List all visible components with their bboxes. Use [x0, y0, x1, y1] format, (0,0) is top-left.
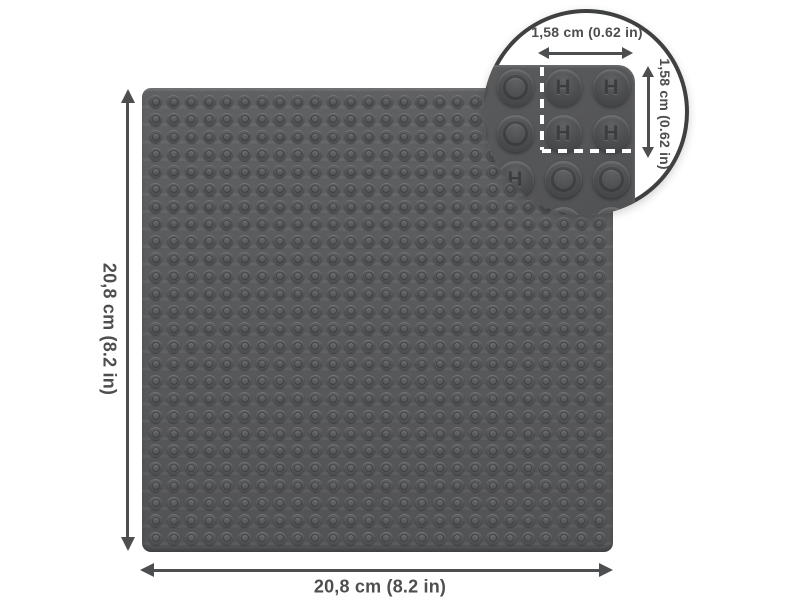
- stud: [167, 410, 180, 423]
- stud: [327, 427, 340, 440]
- stud: [149, 497, 162, 510]
- stud: [433, 322, 446, 335]
- stud: [167, 165, 180, 178]
- stud: [203, 410, 216, 423]
- stud: [362, 322, 375, 335]
- stud: [362, 200, 375, 213]
- stud: [380, 165, 393, 178]
- stud: [220, 165, 233, 178]
- stud: [380, 514, 393, 527]
- brand-logo-letter: H: [603, 215, 618, 216]
- stud: [291, 95, 304, 108]
- stud: [575, 375, 588, 388]
- stud: [220, 462, 233, 475]
- stud: [167, 252, 180, 265]
- stud: [309, 113, 322, 126]
- stud: [149, 375, 162, 388]
- stud: [380, 340, 393, 353]
- stud: [362, 287, 375, 300]
- brand-logo-letter: H: [555, 123, 570, 144]
- stud: [185, 165, 198, 178]
- magnified-stud: [497, 115, 534, 152]
- stud: [469, 200, 482, 213]
- stud: [291, 287, 304, 300]
- stud: [256, 497, 269, 510]
- stud: [344, 375, 357, 388]
- stud: [220, 532, 233, 545]
- stud: [415, 479, 428, 492]
- stud: [149, 305, 162, 318]
- stud: [380, 148, 393, 161]
- stud: [291, 514, 304, 527]
- stud: [415, 235, 428, 248]
- stud: [344, 305, 357, 318]
- stud: [149, 444, 162, 457]
- stud: [291, 183, 304, 196]
- stud: [522, 444, 535, 457]
- stud: [291, 410, 304, 423]
- stud: [469, 148, 482, 161]
- stud: [203, 497, 216, 510]
- stud: [344, 95, 357, 108]
- stud: [469, 410, 482, 423]
- stud: [203, 270, 216, 283]
- stud: [256, 427, 269, 440]
- stud: [433, 252, 446, 265]
- stud: [486, 444, 499, 457]
- stud: [309, 252, 322, 265]
- arrowhead-up-icon: [642, 66, 654, 77]
- stud: [238, 200, 251, 213]
- stud: [203, 217, 216, 230]
- stud: [203, 235, 216, 248]
- stud: [451, 235, 464, 248]
- stud: [327, 200, 340, 213]
- stud: [593, 270, 606, 283]
- stud: [469, 357, 482, 370]
- stud: [273, 514, 286, 527]
- magnified-logo-stud: H: [593, 207, 630, 216]
- arrowhead-up-icon: [121, 89, 135, 103]
- stud: [362, 183, 375, 196]
- stud: [486, 322, 499, 335]
- stud: [291, 200, 304, 213]
- magnified-logo-stud: H: [545, 207, 582, 216]
- stud: [344, 357, 357, 370]
- stud: [256, 130, 269, 143]
- stud: [504, 375, 517, 388]
- stud: [220, 252, 233, 265]
- stud: [344, 148, 357, 161]
- stud: [433, 497, 446, 510]
- magnified-logo-stud: H: [593, 115, 630, 152]
- stud: [398, 340, 411, 353]
- stud: [238, 95, 251, 108]
- stud: [185, 305, 198, 318]
- stud: [433, 148, 446, 161]
- stud: [327, 497, 340, 510]
- stud: [362, 532, 375, 545]
- stud: [486, 497, 499, 510]
- stud: [185, 183, 198, 196]
- stud: [522, 375, 535, 388]
- stud: [557, 217, 570, 230]
- stud: [522, 305, 535, 318]
- stud: [344, 183, 357, 196]
- stud: [149, 165, 162, 178]
- stud: [486, 287, 499, 300]
- stud: [398, 113, 411, 126]
- stud: [593, 375, 606, 388]
- stud: [575, 462, 588, 475]
- stud: [398, 514, 411, 527]
- stud: [309, 130, 322, 143]
- stud: [256, 148, 269, 161]
- stud: [256, 357, 269, 370]
- stud: [149, 514, 162, 527]
- stud: [309, 183, 322, 196]
- stud: [238, 130, 251, 143]
- stud: [380, 235, 393, 248]
- stud: [203, 252, 216, 265]
- stud: [309, 392, 322, 405]
- stud: [238, 392, 251, 405]
- stud: [380, 375, 393, 388]
- stud: [167, 287, 180, 300]
- stud: [398, 270, 411, 283]
- stud: [309, 497, 322, 510]
- stud: [203, 287, 216, 300]
- stud: [220, 375, 233, 388]
- stud: [486, 252, 499, 265]
- stud: [149, 410, 162, 423]
- stud: [593, 287, 606, 300]
- stud: [344, 497, 357, 510]
- stud: [327, 410, 340, 423]
- stud: [593, 235, 606, 248]
- stud: [256, 462, 269, 475]
- stud: [220, 270, 233, 283]
- stud: [220, 235, 233, 248]
- stud: [203, 532, 216, 545]
- stud: [256, 183, 269, 196]
- stud: [451, 113, 464, 126]
- stud: [273, 322, 286, 335]
- stud: [238, 444, 251, 457]
- stud: [433, 392, 446, 405]
- stud: [291, 375, 304, 388]
- stud: [415, 514, 428, 527]
- stud: [273, 252, 286, 265]
- stud: [398, 252, 411, 265]
- stud: [344, 340, 357, 353]
- stud: [469, 217, 482, 230]
- stud: [504, 479, 517, 492]
- stud: [309, 217, 322, 230]
- stud: [433, 375, 446, 388]
- stud: [149, 532, 162, 545]
- stud: [593, 410, 606, 423]
- stud: [469, 427, 482, 440]
- stud: [539, 357, 552, 370]
- stud: [273, 270, 286, 283]
- stud: [433, 113, 446, 126]
- stud: [203, 514, 216, 527]
- stud: [203, 305, 216, 318]
- stud: [256, 200, 269, 213]
- stud: [203, 165, 216, 178]
- stud: [291, 444, 304, 457]
- brand-logo-letter: H: [507, 169, 522, 190]
- stud: [344, 252, 357, 265]
- stud-pitch-width-line: [548, 52, 623, 55]
- magnified-stud: [483, 69, 486, 106]
- stud: [575, 357, 588, 370]
- stud: [327, 340, 340, 353]
- stud: [185, 200, 198, 213]
- stud-pitch-height-label: 1,58 cm (0.62 in): [657, 58, 673, 170]
- stud: [220, 287, 233, 300]
- stud: [504, 462, 517, 475]
- stud: [415, 392, 428, 405]
- stud: [273, 113, 286, 126]
- stud: [185, 375, 198, 388]
- stud: [327, 357, 340, 370]
- arrowhead-down-icon: [642, 147, 654, 158]
- stud: [451, 270, 464, 283]
- stud: [220, 410, 233, 423]
- stud: [433, 235, 446, 248]
- stud: [522, 514, 535, 527]
- inset-magnifier: HHHHHHHH 1,58 cm (0.62 in) 1,58 cm (0.62…: [483, 9, 689, 215]
- stud: [539, 270, 552, 283]
- stud: [451, 514, 464, 527]
- stud: [256, 340, 269, 353]
- stud: [203, 200, 216, 213]
- stud: [486, 217, 499, 230]
- stud: [593, 217, 606, 230]
- stud: [344, 532, 357, 545]
- stud: [220, 444, 233, 457]
- stud: [380, 183, 393, 196]
- stud: [469, 479, 482, 492]
- stud: [149, 340, 162, 353]
- stud: [273, 148, 286, 161]
- stud: [344, 165, 357, 178]
- stud: [593, 252, 606, 265]
- stud: [273, 340, 286, 353]
- stud: [469, 270, 482, 283]
- stud: [185, 427, 198, 440]
- stud: [344, 130, 357, 143]
- stud: [291, 340, 304, 353]
- stud: [149, 95, 162, 108]
- stud: [575, 514, 588, 527]
- stud: [433, 479, 446, 492]
- stud: [398, 497, 411, 510]
- stud: [185, 514, 198, 527]
- stud: [273, 427, 286, 440]
- stud: [167, 183, 180, 196]
- stud: [309, 427, 322, 440]
- stud: [557, 427, 570, 440]
- stud: [593, 514, 606, 527]
- stud: [451, 148, 464, 161]
- stud: [291, 148, 304, 161]
- stud: [398, 462, 411, 475]
- stud: [149, 462, 162, 475]
- stud: [433, 183, 446, 196]
- stud: [167, 532, 180, 545]
- stud: [469, 462, 482, 475]
- stud: [380, 392, 393, 405]
- stud: [291, 462, 304, 475]
- stud: [575, 479, 588, 492]
- height-dimension-line: [126, 100, 129, 540]
- stud: [238, 357, 251, 370]
- stud: [415, 357, 428, 370]
- stud: [167, 235, 180, 248]
- stud: [291, 392, 304, 405]
- stud: [557, 322, 570, 335]
- stud: [539, 392, 552, 405]
- stud: [557, 357, 570, 370]
- stud: [291, 479, 304, 492]
- stud: [327, 113, 340, 126]
- stud: [362, 235, 375, 248]
- stud: [344, 287, 357, 300]
- stud: [539, 410, 552, 423]
- stud: [256, 532, 269, 545]
- stud: [149, 148, 162, 161]
- stud: [380, 497, 393, 510]
- stud: [539, 462, 552, 475]
- stud: [380, 410, 393, 423]
- stud: [362, 305, 375, 318]
- stud: [344, 444, 357, 457]
- stud: [220, 392, 233, 405]
- stud: [380, 305, 393, 318]
- stud: [185, 462, 198, 475]
- stud: [273, 357, 286, 370]
- stud: [469, 95, 482, 108]
- stud: [380, 270, 393, 283]
- arrowhead-down-icon: [121, 537, 135, 551]
- stud: [273, 479, 286, 492]
- stud: [539, 497, 552, 510]
- stud: [220, 113, 233, 126]
- stud: [557, 479, 570, 492]
- stud: [309, 270, 322, 283]
- stud: [344, 427, 357, 440]
- stud: [451, 427, 464, 440]
- stud: [593, 479, 606, 492]
- stud: [185, 270, 198, 283]
- stud: [362, 95, 375, 108]
- stud: [415, 532, 428, 545]
- stud: [433, 532, 446, 545]
- stud: [149, 270, 162, 283]
- stud: [593, 427, 606, 440]
- stud: [327, 375, 340, 388]
- stud: [557, 410, 570, 423]
- stud: [309, 375, 322, 388]
- stud: [398, 532, 411, 545]
- stud: [291, 270, 304, 283]
- stud: [415, 305, 428, 318]
- stud: [593, 497, 606, 510]
- stud: [362, 217, 375, 230]
- brand-logo-letter: H: [603, 123, 618, 144]
- stud: [256, 95, 269, 108]
- stud: [469, 130, 482, 143]
- stud: [451, 410, 464, 423]
- stud: [167, 148, 180, 161]
- stud: [238, 287, 251, 300]
- stud: [504, 357, 517, 370]
- stud: [486, 305, 499, 318]
- stud: [327, 183, 340, 196]
- stud: [149, 235, 162, 248]
- stud: [539, 287, 552, 300]
- stud: [593, 305, 606, 318]
- stud: [149, 479, 162, 492]
- stud: [415, 270, 428, 283]
- stud: [575, 322, 588, 335]
- stud: [327, 235, 340, 248]
- stud: [238, 252, 251, 265]
- magnified-logo-stud: H: [545, 115, 582, 152]
- stud: [203, 427, 216, 440]
- stud: [309, 287, 322, 300]
- stud: [593, 340, 606, 353]
- stud: [256, 392, 269, 405]
- stud: [291, 427, 304, 440]
- stud: [362, 444, 375, 457]
- stud: [167, 497, 180, 510]
- arrowhead-right-icon: [622, 47, 633, 59]
- stud: [309, 479, 322, 492]
- stud: [273, 532, 286, 545]
- magnified-plate-corner: HHHHHHHH: [483, 65, 635, 215]
- stud: [362, 148, 375, 161]
- stud: [522, 235, 535, 248]
- stud: [185, 130, 198, 143]
- stud: [415, 497, 428, 510]
- stud: [238, 235, 251, 248]
- stud: [327, 532, 340, 545]
- stud: [522, 462, 535, 475]
- stud: [220, 148, 233, 161]
- stud: [398, 148, 411, 161]
- stud: [149, 113, 162, 126]
- stud: [415, 200, 428, 213]
- stud: [203, 479, 216, 492]
- arrowhead-left-icon: [538, 47, 549, 59]
- stud: [273, 462, 286, 475]
- stud: [486, 392, 499, 405]
- stud: [327, 148, 340, 161]
- stud: [149, 322, 162, 335]
- stud: [238, 532, 251, 545]
- stud: [575, 444, 588, 457]
- stud: [149, 217, 162, 230]
- stud: [309, 462, 322, 475]
- stud: [575, 392, 588, 405]
- stud: [415, 287, 428, 300]
- stud: [380, 287, 393, 300]
- stud: [220, 305, 233, 318]
